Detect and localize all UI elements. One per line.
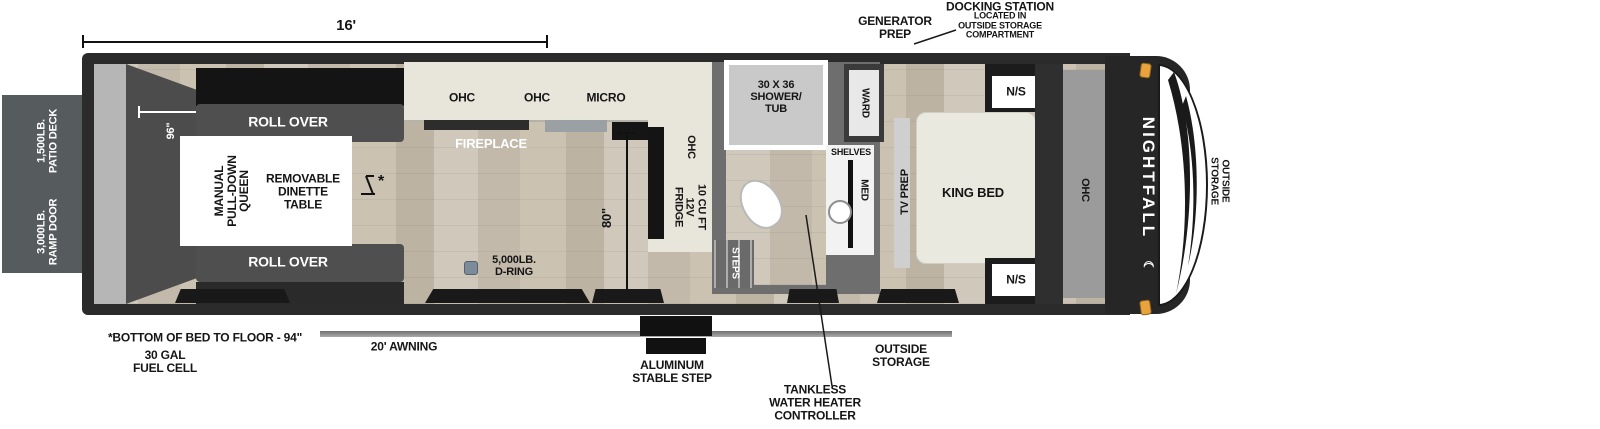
- garage-dim-tick-left: [138, 106, 140, 118]
- shelves-label: SHELVES: [831, 148, 871, 158]
- window-kitchen: [592, 289, 664, 303]
- patio-deck-label: 1,500LB. PATIO DECK: [36, 109, 59, 173]
- kitchen-dim-label: 80": [600, 208, 614, 228]
- d-ring-label: 5,000LB. D-RING: [492, 255, 536, 279]
- micro-label: MICRO: [587, 92, 626, 105]
- table-leg-icon: *: [358, 170, 392, 200]
- nose-swoosh-graphics: [1160, 66, 1208, 306]
- docking-station-sub-label: LOCATED IN OUTSIDE STORAGE COMPARTMENT: [958, 11, 1042, 40]
- fuel-cell-label: 30 GAL FUEL CELL: [133, 349, 197, 375]
- ohc-mid-label: OHC: [524, 92, 550, 105]
- ward-label: WARD: [859, 88, 870, 118]
- kitchen-dim-tick-top: [618, 132, 635, 134]
- shower-label: 30 X 36 SHOWER/ TUB: [750, 80, 801, 116]
- bedroom-ohc-label: OHC: [1078, 178, 1090, 202]
- window-garage: [175, 289, 290, 303]
- floorplan-diagram: 1,500LB. PATIO DECK 3,000LB. RAMP DOOR 1…: [0, 0, 1600, 429]
- rear-wall-frame: [94, 64, 128, 304]
- generator-prep-label: GENERATOR PREP: [858, 15, 932, 41]
- overall-dim-tick-left: [82, 35, 84, 48]
- fireplace-unit: [424, 120, 529, 130]
- kitchen-sink-strip: [545, 120, 607, 132]
- ns-top-label: N/S: [1006, 86, 1025, 99]
- steps-label: STEPS: [729, 247, 740, 279]
- kitchen-dim-line: [626, 133, 628, 303]
- window-living: [425, 289, 590, 303]
- fireplace-label: FIREPLACE: [455, 137, 527, 151]
- awning-bar: [320, 331, 952, 337]
- marker-light-top: [1139, 62, 1152, 78]
- bath-sink: [828, 200, 852, 224]
- awning-label: 20' AWNING: [371, 341, 437, 354]
- ns-bottom-label: N/S: [1006, 274, 1025, 287]
- dinette-label: REMOVABLE DINETTE TABLE: [266, 173, 340, 212]
- slide-top-shadow: [196, 68, 404, 106]
- window-bedroom: [877, 289, 959, 303]
- front-nose-cap: [1158, 64, 1208, 306]
- overall-dim-tick-right: [546, 35, 548, 48]
- sofa-bottom-label: ROLL OVER: [248, 254, 328, 269]
- front-wardrobe: [1035, 64, 1063, 304]
- sofa-top-label: ROLL OVER: [248, 114, 328, 129]
- window-hall: [787, 289, 839, 303]
- entry-step-exterior-lower: [646, 338, 706, 354]
- marker-light-bottom: [1139, 299, 1152, 315]
- fridge-unit: [648, 127, 664, 239]
- brand-logo: NIGHTFALL: [1139, 117, 1157, 239]
- crescent-icon: ☾: [1141, 260, 1155, 271]
- outside-storage-bottom-label: OUTSIDE STORAGE: [872, 343, 930, 369]
- bed-to-floor-note: *BOTTOM OF BED TO FLOOR - 94": [108, 332, 302, 345]
- garage-dim-label: 96": [166, 123, 178, 140]
- overall-dim-label: 16': [336, 18, 356, 34]
- fridge-label: 10 CU FT 12V FRIDGE: [672, 184, 707, 230]
- tv-prep-label: TV PREP: [900, 169, 912, 215]
- tankless-label: TANKLESS WATER HEATER CONTROLLER: [769, 384, 861, 423]
- queen-bed-label: MANUAL PULL-DOWN QUEEN: [213, 155, 251, 227]
- med-label: MED: [858, 179, 869, 201]
- d-ring-icon: [464, 261, 478, 275]
- entry-step-exterior: [640, 316, 712, 336]
- overall-dim-line: [82, 41, 548, 43]
- king-bed-label: KING BED: [942, 186, 1004, 200]
- front-outside-storage-label: OUTSIDE STORAGE: [1209, 157, 1230, 205]
- ohc-side-label: OHC: [684, 135, 696, 159]
- stable-step-label: ALUMINUM STABLE STEP: [632, 359, 712, 385]
- table-mark: *: [378, 173, 385, 190]
- ohc-left-label: OHC: [449, 92, 475, 105]
- ramp-door-label: 3,000LB. RAMP DOOR: [36, 199, 59, 265]
